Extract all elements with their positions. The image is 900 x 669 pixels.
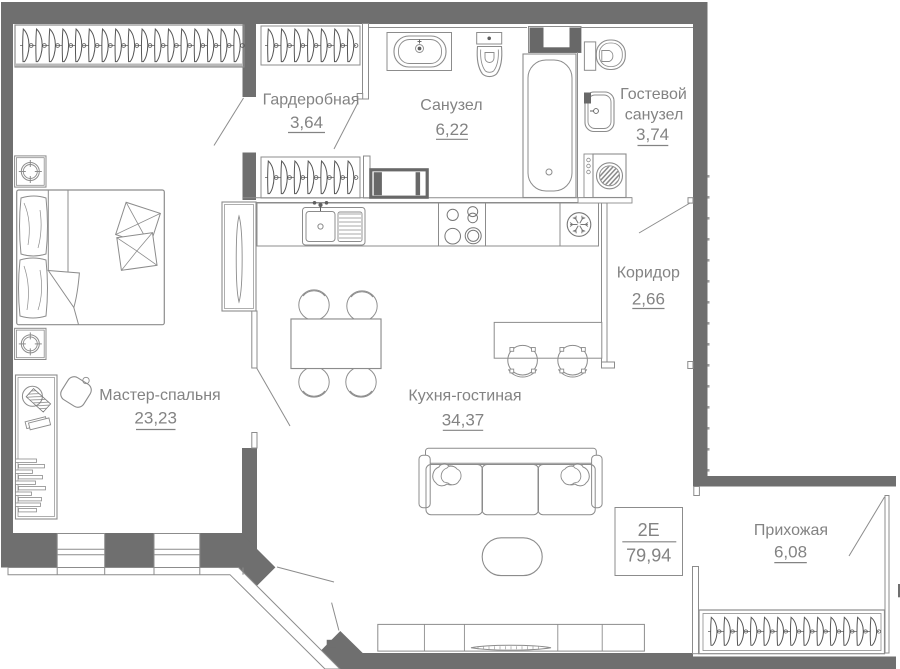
svg-text:Гардеробная: Гардеробная <box>263 92 360 109</box>
svg-text:6,22: 6,22 <box>435 120 468 139</box>
svg-text:23,23: 23,23 <box>134 409 177 428</box>
svg-text:Санузел: Санузел <box>420 97 482 114</box>
svg-text:3,74: 3,74 <box>636 125 669 144</box>
svg-text:2Е: 2Е <box>638 520 660 540</box>
svg-text:Коридор: Коридор <box>617 265 680 282</box>
svg-text:3,64: 3,64 <box>290 113 323 132</box>
svg-text:6,08: 6,08 <box>774 543 807 562</box>
svg-text:Гостевой: Гостевой <box>620 86 687 103</box>
svg-text:2,66: 2,66 <box>632 290 665 309</box>
svg-text:34,37: 34,37 <box>442 411 485 430</box>
svg-text:санузел: санузел <box>625 107 684 124</box>
svg-text:79,94: 79,94 <box>626 546 671 566</box>
svg-text:Прихожая: Прихожая <box>754 522 828 539</box>
svg-text:Мастер-спальня: Мастер-спальня <box>99 387 220 404</box>
svg-text:Кухня-гостиная: Кухня-гостиная <box>408 388 521 405</box>
